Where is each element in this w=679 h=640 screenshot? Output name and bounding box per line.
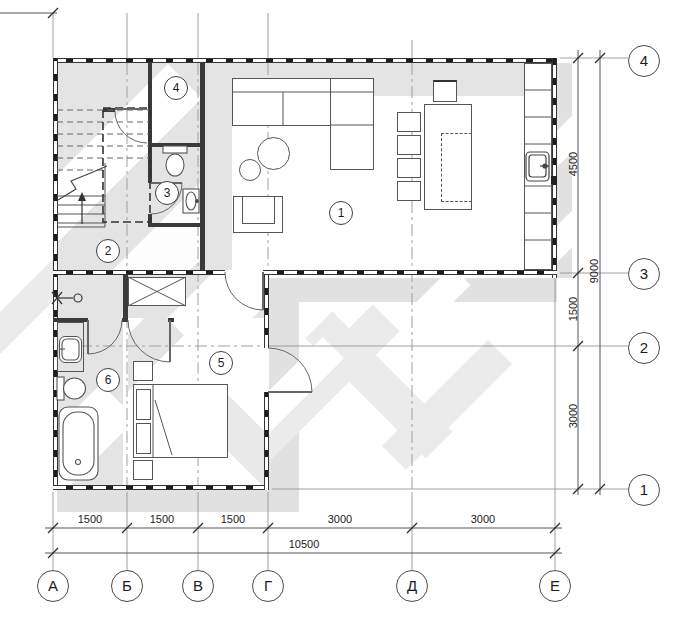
stair-flight-above-dashed: [103, 108, 150, 222]
axis-circle-v: В: [182, 570, 214, 602]
room-label-2: 2: [96, 239, 120, 263]
dim-2-1: 3000: [567, 386, 579, 446]
washbasin-icon: [183, 189, 199, 213]
toilet-icon: [57, 377, 86, 400]
sofa-detail-lines: [153, 90, 552, 458]
wardrobe-cross-icon: [128, 277, 186, 306]
kitchen-sink-icon: [526, 152, 557, 184]
axis-circle-4: 4: [628, 45, 660, 77]
dim-v-g: 1500: [203, 513, 263, 525]
axis-circle-g: Г: [252, 570, 284, 602]
room-label-4: 4: [164, 76, 188, 100]
axis-circle-d: Д: [396, 570, 428, 602]
dim-3-2: 1500: [567, 279, 579, 339]
water-tap-icon: [52, 292, 82, 304]
axis-circle-b: Б: [111, 570, 143, 602]
dim-b-v: 1500: [132, 513, 192, 525]
dim-total-bottom: 10500: [269, 538, 339, 550]
axis-circle-2: 2: [628, 332, 660, 364]
floor-plan-canvas: 1 2 3 4 5 6 1500 1500 1500 3000 3000 105…: [0, 0, 679, 640]
toilet-icon: [163, 146, 187, 176]
axis-circle-e: Е: [539, 570, 571, 602]
stairs: [57, 108, 150, 227]
dim-g-d: 3000: [310, 513, 370, 525]
dim-total-right: 9000: [588, 241, 600, 301]
axis-circle-a: А: [37, 570, 69, 602]
room-label-1: 1: [329, 201, 353, 225]
axis-circle-3: 3: [628, 258, 660, 290]
room-label-3: 3: [155, 181, 179, 205]
dim-4-3: 4500: [567, 134, 579, 194]
door-swings: [88, 109, 312, 392]
room-label-5: 5: [209, 351, 233, 375]
bathtub-icon: [59, 339, 98, 480]
axis-circle-1: 1: [628, 474, 660, 506]
dim-d-e: 3000: [453, 513, 513, 525]
dim-a-b: 1500: [60, 513, 120, 525]
room-label-6: 6: [96, 368, 120, 392]
